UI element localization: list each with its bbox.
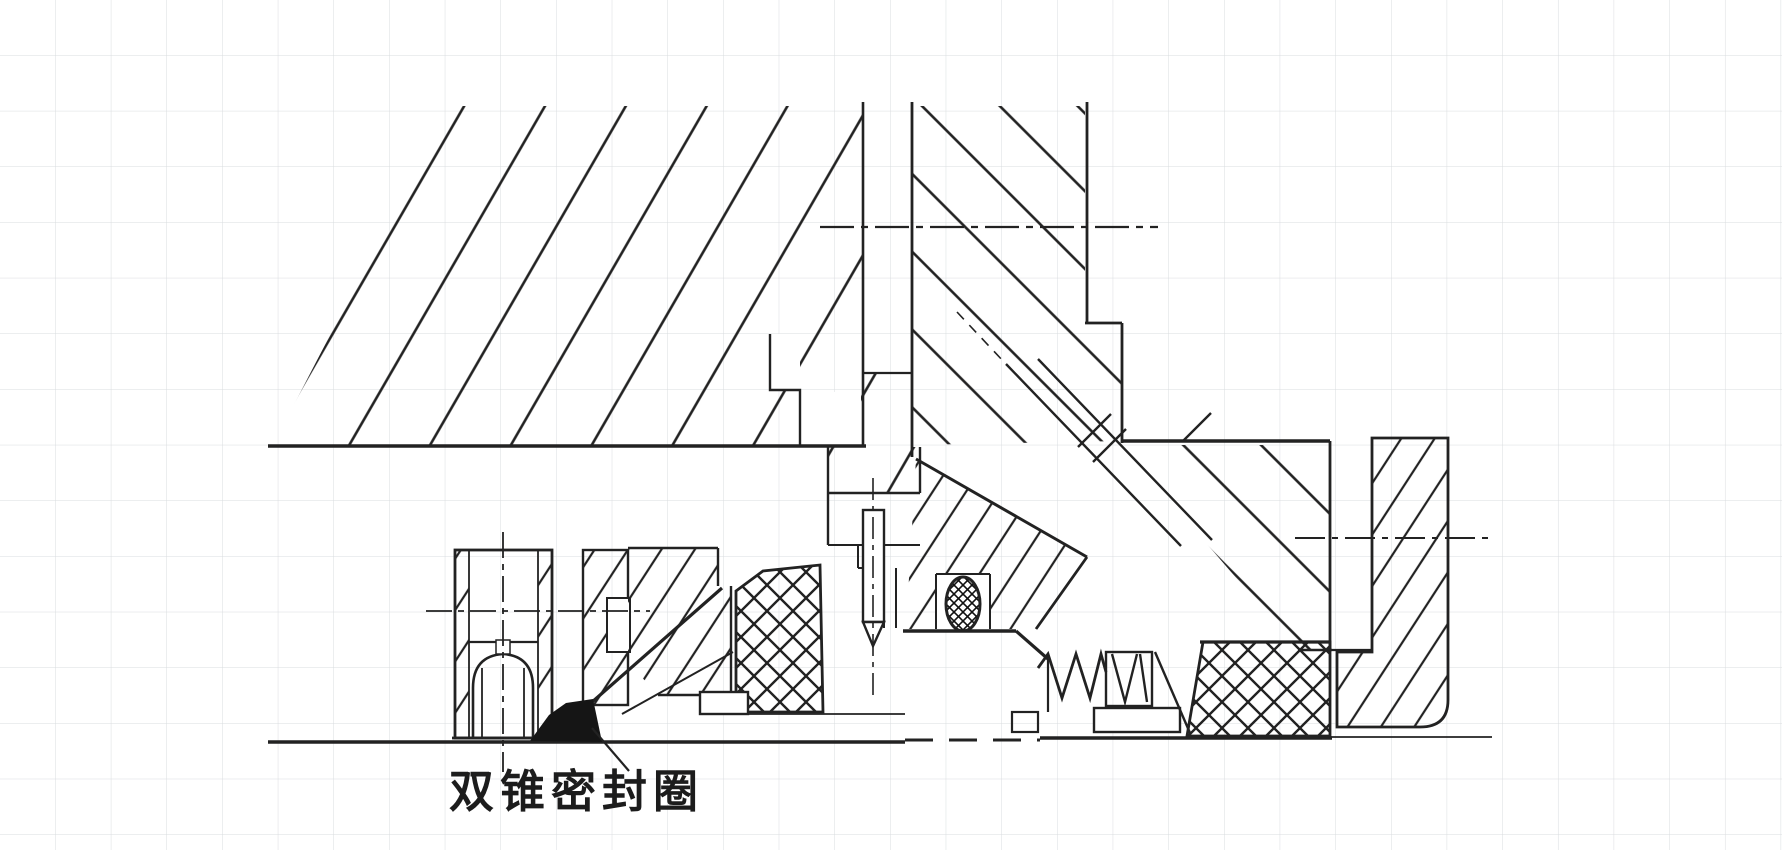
stationary-seat-parts [583, 548, 733, 714]
seal-ring-label: 双锥密封圈 [449, 765, 704, 818]
screenshot-root: 双锥密封圈 [0, 0, 1782, 850]
mechanical-seal-drawing: 双锥密封圈 [0, 0, 1782, 850]
o-ring [946, 577, 980, 631]
